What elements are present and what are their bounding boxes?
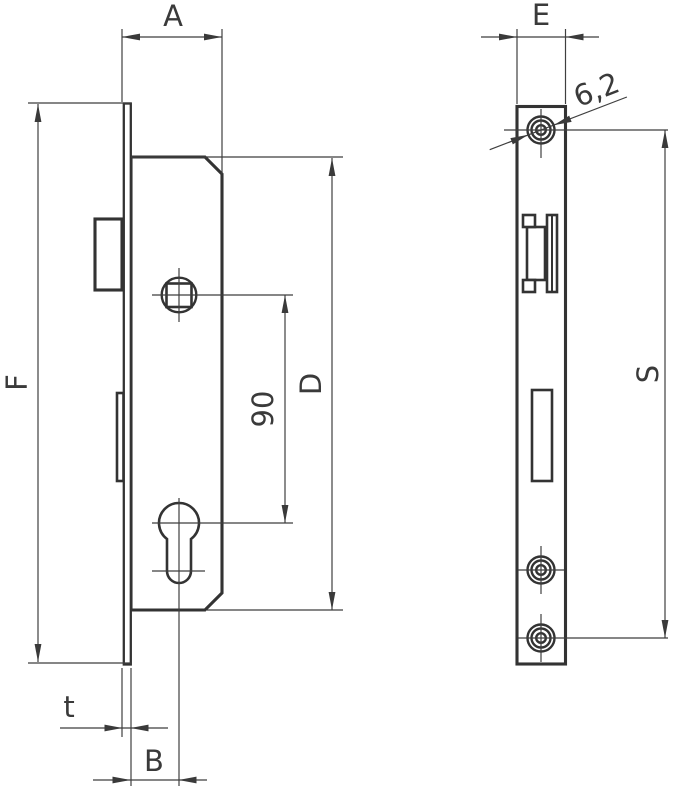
latch-cutout-notch-top	[523, 215, 535, 227]
latch-cutout	[523, 215, 557, 292]
dim-t-label: t	[63, 690, 74, 724]
dim-b-arrow-right	[179, 777, 197, 784]
dim-f: F	[0, 103, 131, 663]
dim-b: B	[93, 744, 207, 783]
deadbolt-cutout	[532, 390, 552, 481]
technical-drawing: A F 90 D t B	[0, 0, 675, 796]
dim-t-arrow-right	[131, 725, 149, 732]
dim-d-arrow-bottom	[329, 592, 336, 610]
dim-90: 90	[246, 295, 288, 523]
side-view	[95, 104, 293, 787]
deadbolt-side	[117, 393, 124, 481]
dim-a-label: A	[163, 0, 183, 33]
dim-a-arrow-left	[122, 34, 140, 41]
dim-b-label: B	[144, 744, 164, 778]
dim-s: S	[631, 130, 668, 638]
dim-f-arrow-top	[35, 104, 42, 122]
dim-90-value: 90	[246, 391, 280, 428]
dim-t-arrow-left	[105, 725, 123, 732]
dim-d-label: D	[294, 373, 328, 395]
dim-a: A	[122, 0, 222, 174]
dim-f-label: F	[0, 374, 34, 391]
faceplate-side	[124, 104, 131, 665]
latch-cutout-body	[527, 227, 545, 280]
dim-b-arrow-left	[113, 777, 131, 784]
front-view	[504, 107, 668, 665]
dim-e-arrow-left	[499, 34, 517, 41]
dim-a-arrow-right	[204, 34, 222, 41]
dim-f-arrow-bottom	[35, 644, 42, 662]
hole-dia-value: 6,2	[569, 66, 624, 114]
dim-d-arrow-top	[329, 158, 336, 176]
dim-e-arrow-right	[566, 34, 584, 41]
latch-cutout-notch-bottom	[523, 280, 535, 292]
dim-s-label: S	[631, 365, 665, 383]
dim-s-arrow-top	[662, 130, 669, 148]
dim-90-arrow-top	[282, 295, 289, 313]
dim-90-arrow-bottom	[282, 505, 289, 523]
latch-bolt-side	[95, 219, 122, 290]
dim-e-label: E	[532, 0, 550, 32]
dim-s-arrow-bottom	[662, 620, 669, 638]
